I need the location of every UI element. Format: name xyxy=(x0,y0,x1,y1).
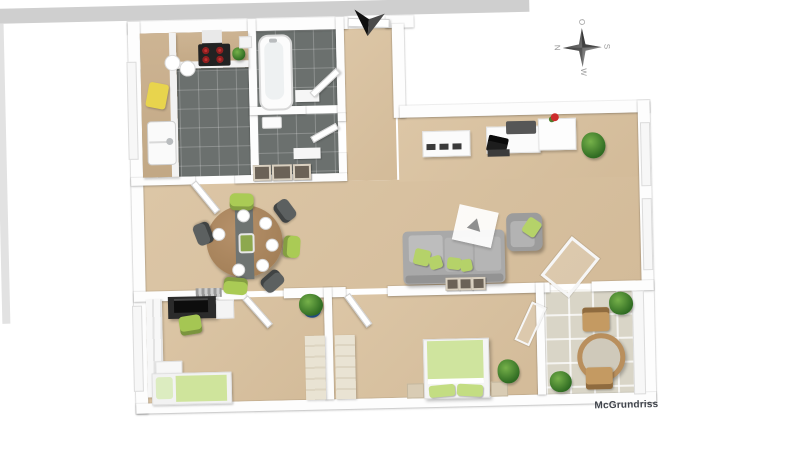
office-wardrobe-wood xyxy=(305,336,326,400)
office-desk-screen xyxy=(174,298,208,313)
dining-chair-green-right xyxy=(283,235,301,258)
floorplan-canvas: O S W N McGrundriss xyxy=(0,0,800,449)
picture-frame-dining-2 xyxy=(272,164,292,180)
dining-chair-green-bottom xyxy=(223,277,248,296)
balcony-bush-top xyxy=(609,292,634,316)
table-centerpiece xyxy=(238,233,254,253)
wall-front-face-right xyxy=(0,24,10,324)
entry-side-wall xyxy=(392,24,406,118)
kitchen-box xyxy=(239,36,252,48)
compass-west-label: W xyxy=(579,68,588,76)
balcony-railing xyxy=(632,290,646,394)
bedroom-plant xyxy=(497,359,520,383)
window-living-right-2 xyxy=(642,198,654,270)
single-bed-pillow xyxy=(156,377,173,399)
apartment-3d-floorplan: O S W N McGrundriss xyxy=(0,0,800,449)
palm-plant xyxy=(581,132,606,159)
compass-rose: O S W N xyxy=(556,21,609,74)
nightstand-left xyxy=(407,383,424,398)
bed-pillow-right xyxy=(457,384,484,397)
wall-kitchen-dining-a xyxy=(131,176,195,185)
herb-pot xyxy=(232,47,245,60)
compass-east-label: O xyxy=(577,19,586,25)
picture-frame-dining-3 xyxy=(293,164,311,180)
bathtub-inner xyxy=(264,41,284,99)
office-plant xyxy=(299,294,323,317)
desk-bench xyxy=(488,149,510,156)
watermark: McGrundriss xyxy=(564,399,658,412)
desk-pad xyxy=(506,121,536,135)
wall-hall-bottom-d xyxy=(592,280,654,291)
entrance-hall-floor xyxy=(344,28,397,181)
window-living-right-1 xyxy=(640,122,651,186)
picture-frame-hall-3 xyxy=(471,277,485,290)
compass-star-icon xyxy=(556,21,609,74)
double-bed-duvet xyxy=(427,340,484,381)
nightstand-right xyxy=(491,381,508,396)
compass-north-label: N xyxy=(553,45,562,51)
sofa-pillow-4 xyxy=(459,258,473,272)
office-chair xyxy=(178,314,203,336)
balcony-chair-top xyxy=(582,307,610,332)
wall-wc-entry-a xyxy=(338,113,346,121)
wc-basin xyxy=(262,116,282,128)
bed-pillow-left xyxy=(429,384,456,398)
wall-wc-entry-b xyxy=(339,153,347,173)
single-bed-blanket xyxy=(176,375,228,402)
picture-frame-dining-1 xyxy=(253,165,271,181)
wc-mat xyxy=(293,148,320,160)
compass-south-label: S xyxy=(602,44,611,50)
balcony-chair-bottom xyxy=(586,367,613,390)
entrance-arrow-icon xyxy=(350,7,386,40)
bedroom-wardrobe-wood xyxy=(335,335,356,399)
tv-lowboard-slats xyxy=(426,143,464,150)
office-desk-return xyxy=(216,300,234,319)
balcony-bush-bottom xyxy=(550,371,572,392)
living-cabinet xyxy=(538,118,577,151)
bath-faucet xyxy=(269,39,277,43)
entrance-arrow xyxy=(350,7,386,40)
window-office-left xyxy=(132,306,144,392)
dining-chair-green-top xyxy=(230,193,254,210)
